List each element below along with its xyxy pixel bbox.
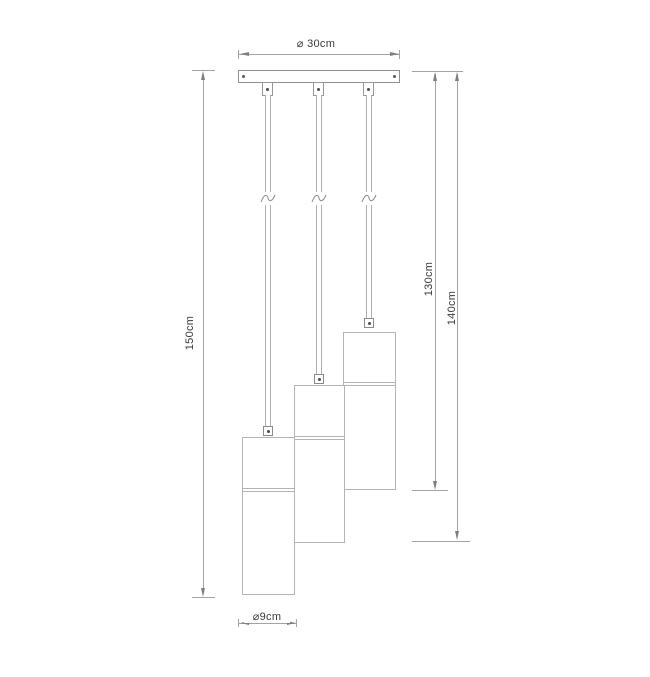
dimension-end-tick	[296, 619, 297, 627]
shade-connector-middle	[314, 374, 324, 384]
short-drop-dimension-line	[435, 74, 436, 481]
dimension-extension-line	[412, 490, 448, 491]
canopy-dimension-line	[238, 54, 400, 55]
dimension-extension-line	[412, 541, 470, 542]
short-drop-label: 130cm	[423, 249, 435, 309]
total-drop-label: 150cm	[184, 303, 196, 363]
arrow-right-icon	[390, 52, 399, 56]
cord-break-icon	[311, 192, 327, 205]
dimension-end-tick	[238, 50, 239, 59]
dimension-end-tick	[399, 50, 400, 59]
arrow-up-icon	[455, 72, 459, 81]
connector-screw	[368, 322, 371, 325]
shade-seam	[242, 488, 295, 492]
shade-connector-left	[263, 426, 273, 436]
lamp-dimension-diagram: ⌀ 30cm 150cm	[0, 0, 650, 677]
cord-grip-left	[262, 82, 273, 96]
arrow-left-icon	[240, 52, 249, 56]
grip-screw	[266, 88, 269, 91]
cord-left	[265, 95, 271, 426]
canopy-screw	[393, 75, 396, 78]
shade-seam	[343, 382, 396, 386]
shade-connector-right	[364, 318, 374, 328]
connector-screw	[267, 430, 270, 433]
arrow-up-icon	[433, 72, 437, 81]
cord-break-icon	[260, 192, 276, 205]
connector-screw	[318, 378, 321, 381]
cord-break-icon	[361, 192, 377, 205]
total-drop-dimension-line	[203, 74, 204, 589]
grip-screw	[317, 88, 320, 91]
canopy-diameter-label: ⌀ 30cm	[284, 38, 348, 50]
arrow-down-icon	[455, 531, 459, 540]
cord-grip-right	[363, 82, 374, 96]
arrow-up-icon	[201, 71, 205, 80]
cord-middle	[316, 95, 322, 374]
shade-diameter-label: ⌀9cm	[244, 611, 290, 623]
shade-seam	[294, 436, 345, 440]
grip-screw	[367, 88, 370, 91]
arrow-down-icon	[433, 481, 437, 490]
dimension-extension-line	[192, 597, 215, 598]
lamp-shade-left	[242, 437, 295, 595]
canopy-screw	[242, 75, 245, 78]
cord-right	[366, 95, 372, 318]
lamp-shade-right	[343, 332, 396, 490]
lamp-shade-middle	[294, 385, 345, 543]
arrow-down-icon	[201, 588, 205, 597]
cord-grip-middle	[313, 82, 324, 96]
mid-drop-label: 140cm	[446, 278, 458, 338]
dimension-end-tick	[238, 619, 239, 627]
